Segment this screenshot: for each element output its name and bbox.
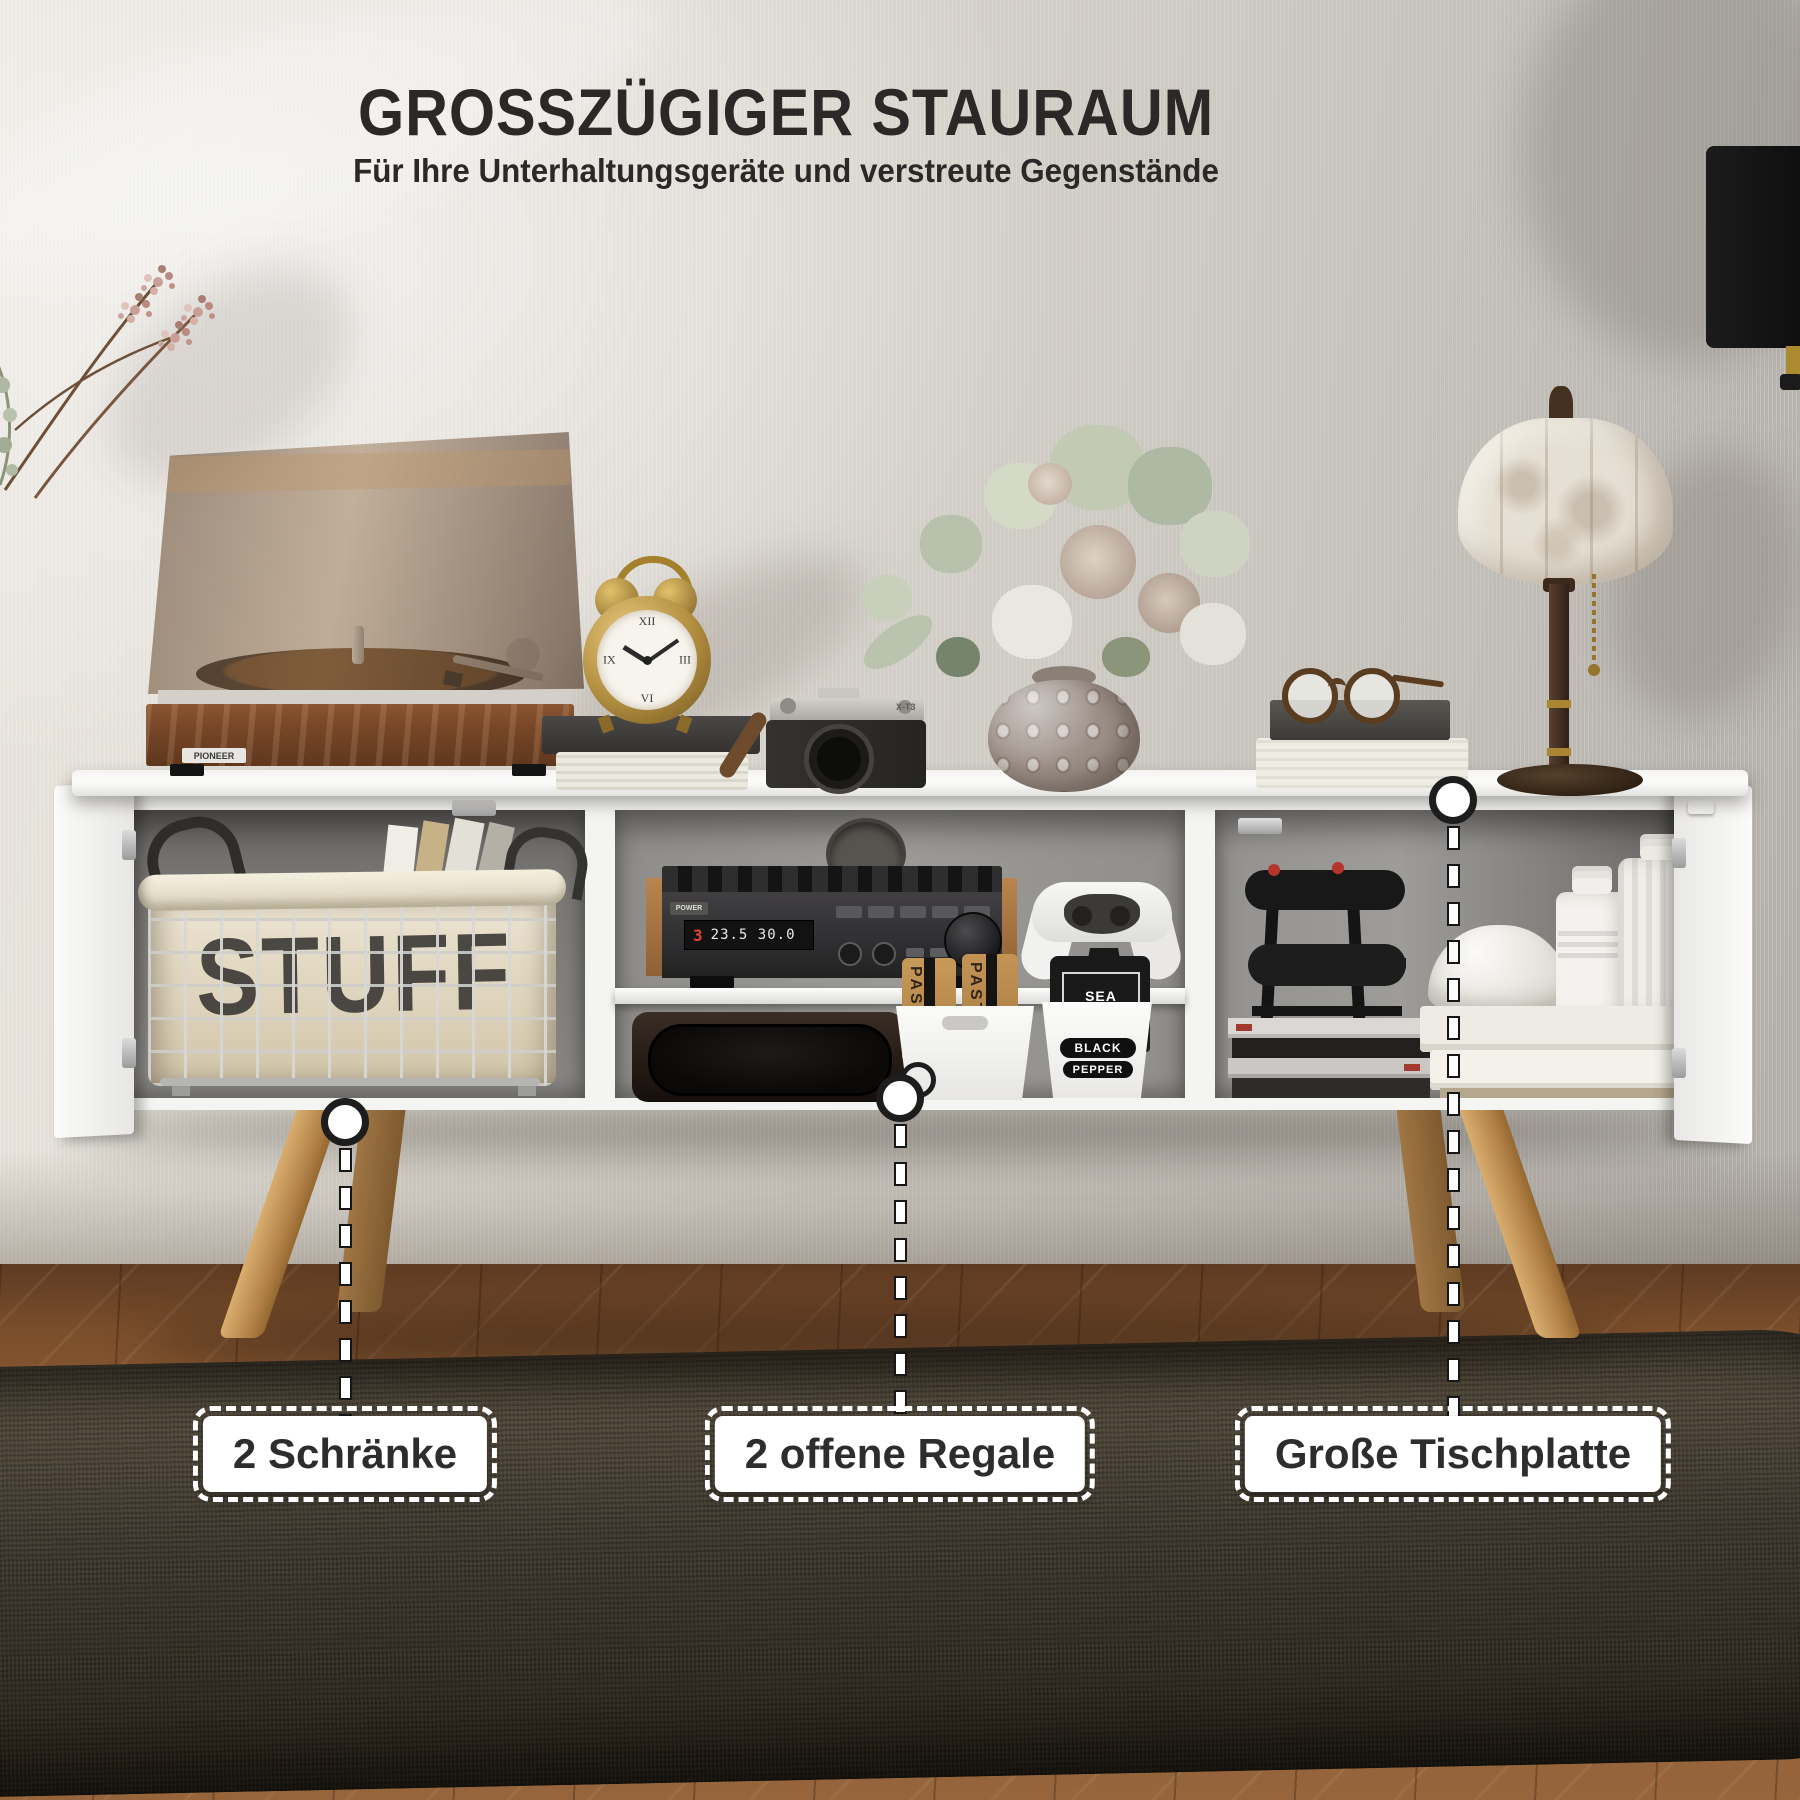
callout-cabinets: 2 Schränke [203, 1416, 487, 1492]
game-case [1228, 1058, 1432, 1078]
rack-controller-button [1268, 864, 1280, 876]
lamp-stem [1549, 584, 1569, 770]
game-case-accent [1404, 1064, 1420, 1071]
salt-text-sea: SEA [1085, 989, 1117, 1004]
dried-branch-decor [0, 160, 300, 500]
leader-line-tabletop [1447, 826, 1460, 1416]
game-case [1232, 1038, 1430, 1058]
receiver-frequency: 23.5 30.0 [711, 927, 796, 943]
pasta-bin-handle [942, 1016, 988, 1030]
basket-rim [138, 869, 566, 911]
leaf-blob [936, 637, 980, 677]
receiver-button [900, 906, 926, 918]
hydrangea-blob [1180, 603, 1246, 665]
clock-face: XII III VI IX [597, 610, 697, 710]
product-scene: STUFF POWER 3 23.5 30.0 PASTA PASTA [0, 0, 1800, 1800]
turntable-brand-badge: PIONEER [182, 748, 246, 763]
callout-shelves: 2 offene Regale [715, 1416, 1085, 1492]
camera-lens [804, 724, 874, 794]
game-case [1232, 1078, 1430, 1098]
basket-wire-grid [148, 898, 556, 1086]
camera-dial [780, 698, 796, 714]
door-handle-bracket [1688, 800, 1714, 814]
pepper-pill-black: BLACK [1060, 1038, 1136, 1058]
game-case [1228, 1018, 1433, 1038]
eucalyptus-blob [862, 575, 912, 621]
door-hinge [1672, 838, 1686, 868]
hinge-plate [452, 800, 496, 816]
turntable-foot [512, 764, 546, 776]
callout-tabletop: Große Tischplatte [1245, 1416, 1661, 1492]
receiver-knob-small [872, 942, 896, 966]
wall-sconce-arm [1780, 374, 1800, 390]
leaf-blob [1102, 637, 1150, 677]
eyeglasses-lens [1282, 668, 1338, 724]
white-book-stack [1420, 1006, 1710, 1052]
rack-crossbar [1252, 1006, 1402, 1016]
receiver-display: 3 23.5 30.0 [684, 920, 814, 950]
unit-floor-shadow [140, 1312, 1620, 1368]
controller-stick [1072, 906, 1092, 926]
table-book-cream [1256, 738, 1468, 788]
leader-line-shelves [894, 1124, 907, 1416]
receiver-power-label: POWER [670, 902, 708, 915]
fabric-box [1440, 1088, 1696, 1098]
door-hinge [122, 1038, 136, 1068]
hydrangea-blob [992, 585, 1072, 659]
eyeglasses-bridge [1328, 678, 1346, 696]
clock-numeral-9: IX [603, 653, 616, 668]
clock-numeral-6: VI [641, 691, 654, 706]
clock-center-pin [643, 656, 652, 665]
bubble-vase [988, 680, 1140, 792]
lamp-pull-chain [1592, 574, 1596, 666]
hinge-plate [1238, 818, 1282, 834]
basket-foot [518, 1086, 536, 1096]
turntable-lid-top-face [165, 449, 571, 493]
clock-numeral-3: III [679, 653, 691, 668]
receiver-button [868, 906, 894, 918]
lamp-shade [1458, 418, 1673, 586]
basket-base-rail [160, 1078, 540, 1086]
lamp-brass-ring [1547, 700, 1571, 708]
leader-dot-shelves [876, 1074, 924, 1122]
door-hinge [1672, 1048, 1686, 1078]
page-title: GROSSZÜGIGER STAURAUM [358, 74, 1214, 150]
game-case-accent [1236, 1024, 1252, 1031]
pepper-pill-pepper: PEPPER [1063, 1061, 1133, 1078]
bottle-rings [1558, 928, 1626, 958]
wall-sconce-stem [1786, 346, 1800, 376]
receiver-knob-small [838, 942, 862, 966]
lamp-brass-ring [1547, 748, 1571, 756]
receiver-button [836, 906, 862, 918]
speaker-front [648, 1024, 892, 1096]
rack-controller-button [1332, 862, 1344, 874]
lamp-base [1497, 764, 1643, 796]
turntable-foot [170, 764, 204, 776]
basket-foot [172, 1086, 190, 1096]
rose-blossom [1028, 463, 1072, 505]
eucalyptus-blob [920, 515, 982, 573]
leader-dot-cabinets [321, 1098, 369, 1146]
leader-line-cabinets [339, 1148, 352, 1416]
receiver-rocker [906, 948, 924, 957]
leader-dot-tabletop [1429, 776, 1477, 824]
turntable-lid [148, 432, 584, 694]
lamp-pull-knob [1588, 664, 1600, 676]
door-hinge [122, 830, 136, 860]
white-book-stack [1430, 1050, 1702, 1090]
rack-controller-mid [1248, 944, 1406, 986]
right-cabinet-door [1674, 782, 1752, 1144]
bottle-neck [1572, 866, 1612, 894]
receiver-wood-cheek [646, 878, 662, 976]
controller-stick [1110, 906, 1130, 926]
clock-numeral-12: XII [639, 614, 656, 629]
eucalyptus-blob [1180, 511, 1250, 577]
rack-controller-top [1245, 870, 1405, 910]
rose-blossom [1060, 525, 1136, 599]
wall-sconce-shade [1706, 146, 1800, 348]
receiver-preset-digit: 3 [693, 926, 703, 945]
receiver-top-vent [662, 866, 1002, 892]
page-subtitle: Für Ihre Unterhaltungsgeräte und verstre… [353, 152, 1219, 190]
receiver-button [932, 906, 958, 918]
